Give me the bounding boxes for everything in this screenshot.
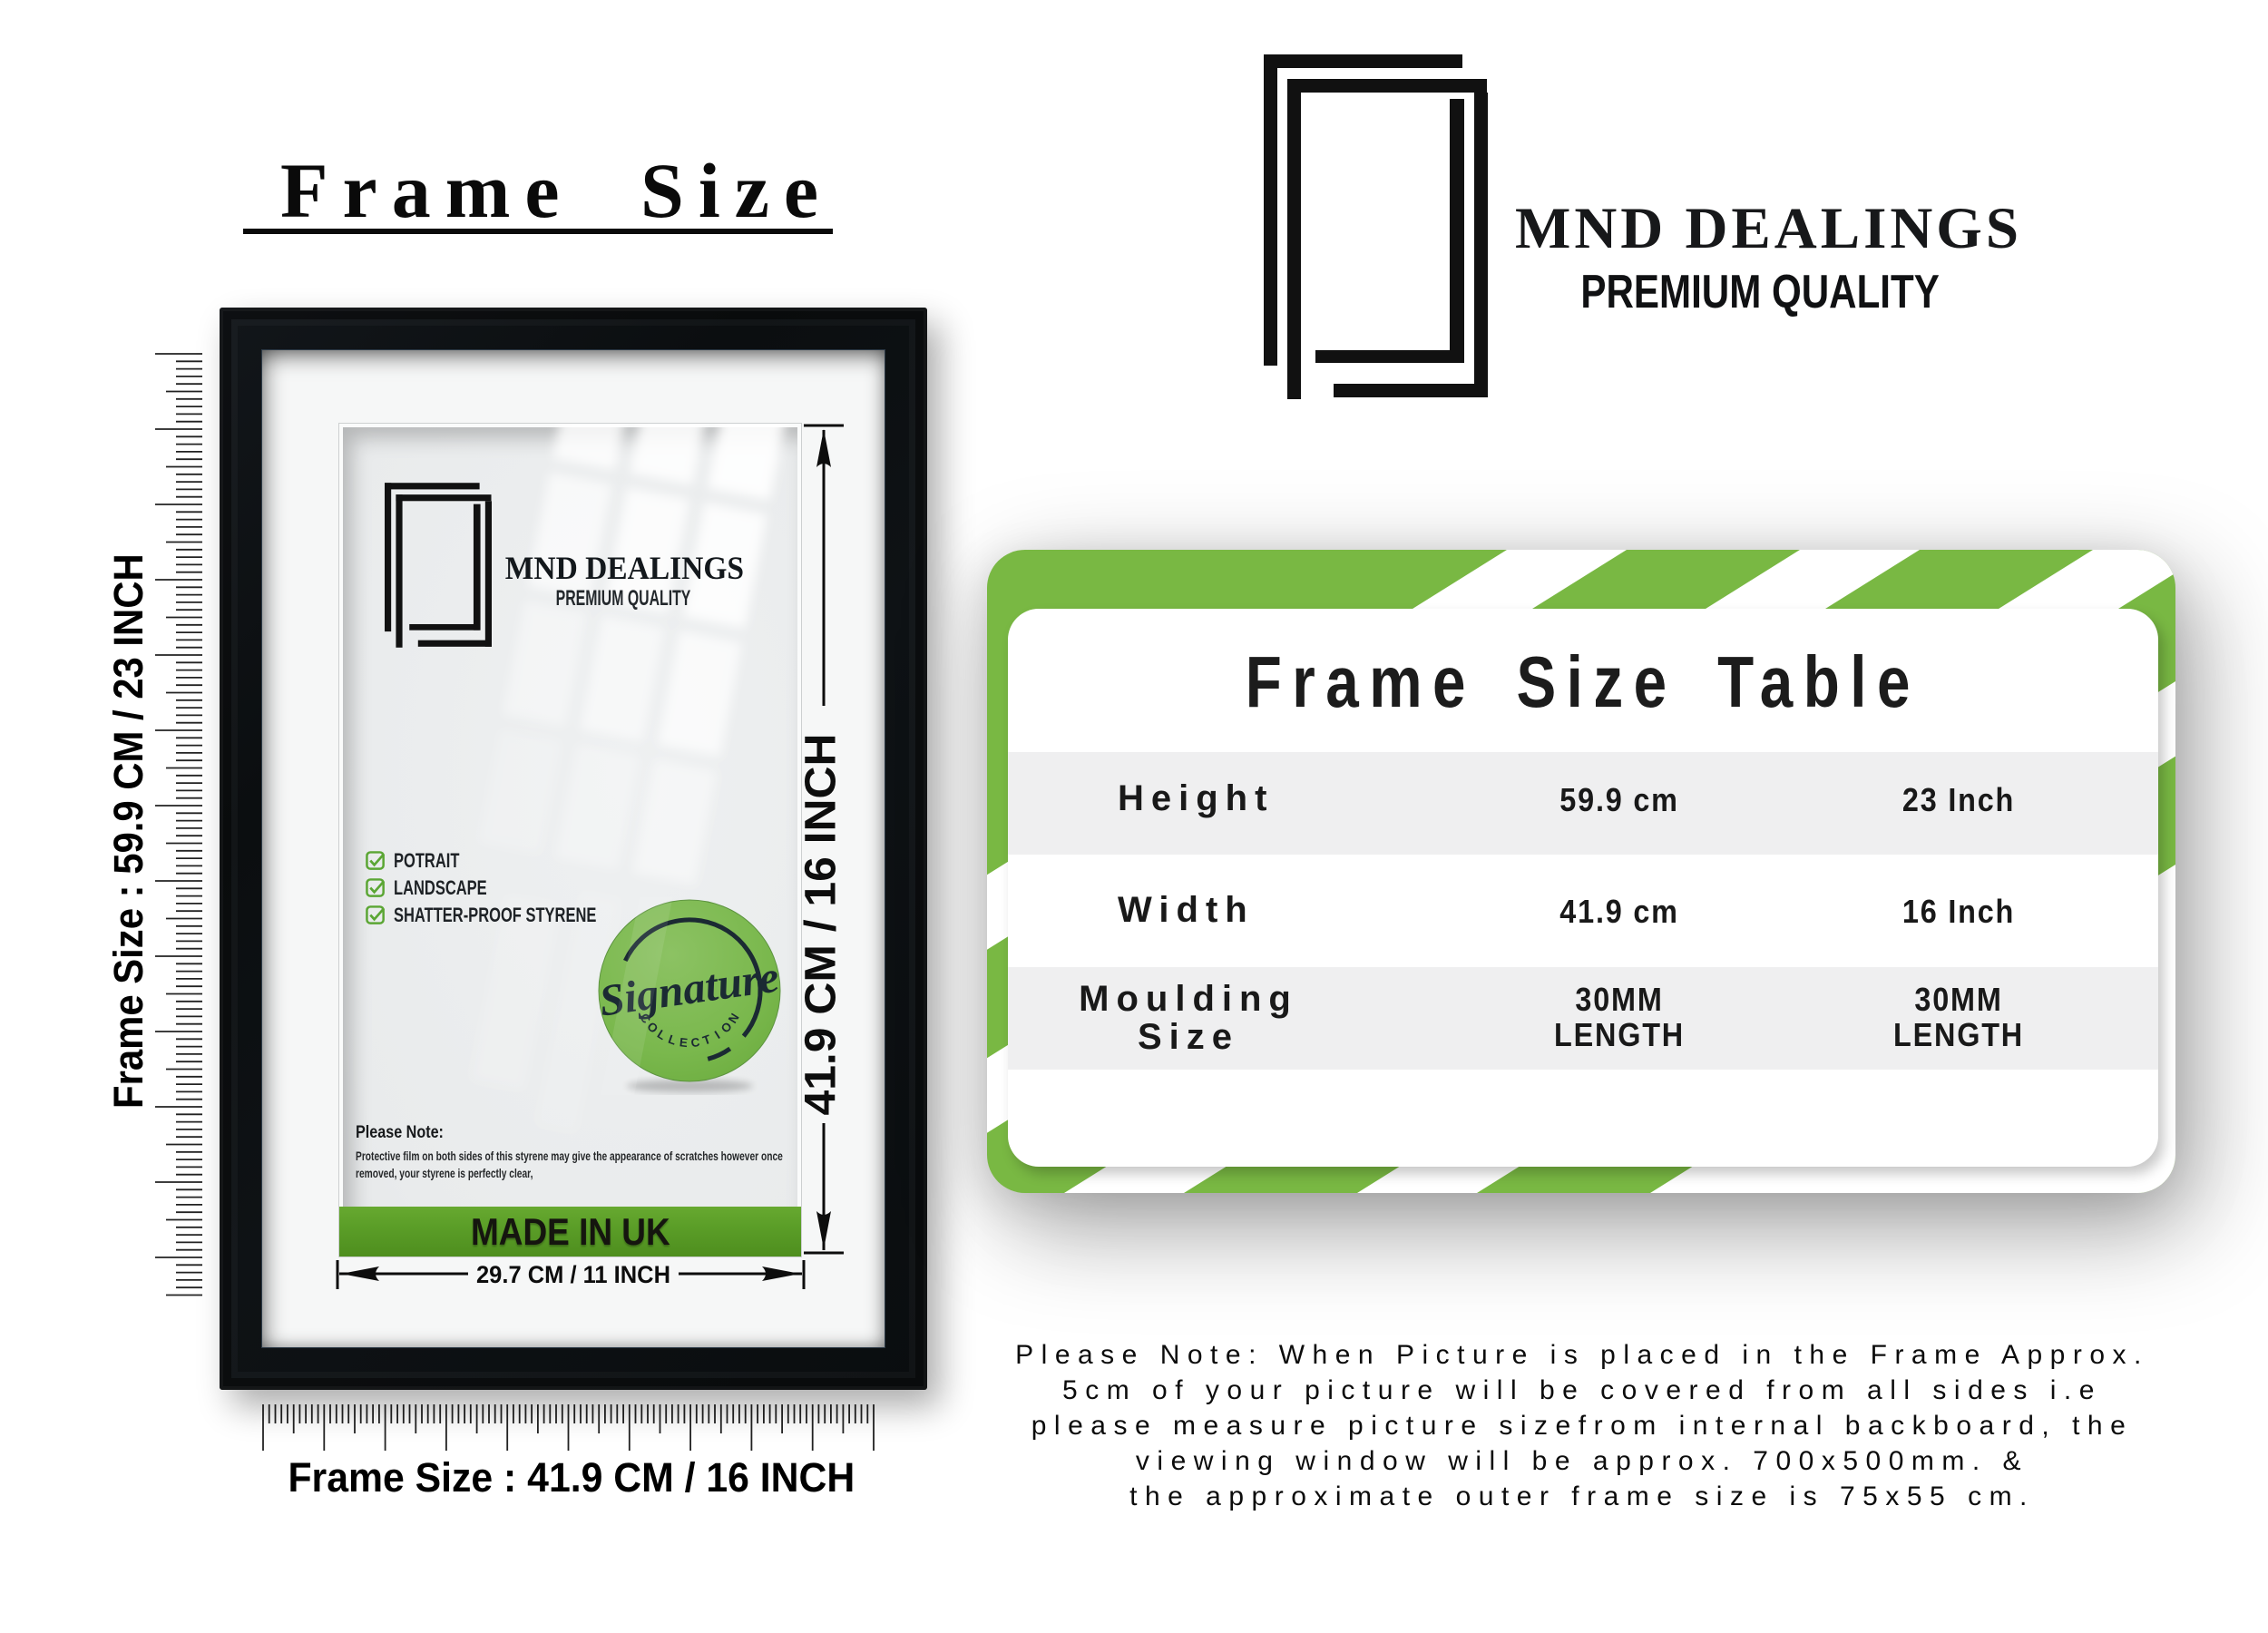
svg-text:29.7 CM / 11 INCH: 29.7 CM / 11 INCH (476, 1261, 670, 1288)
svg-text:41.9 CM / 16 INCH: 41.9 CM / 16 INCH (797, 734, 846, 1116)
